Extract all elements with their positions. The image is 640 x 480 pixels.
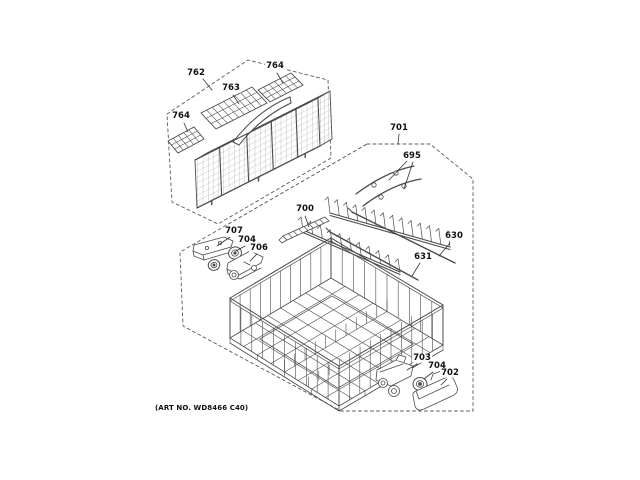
- part-callout-764-left: 764: [171, 112, 191, 121]
- carrier-703-drawing: [376, 355, 413, 397]
- art-number: (ART NO. WD8466 C40): [155, 404, 248, 412]
- part-callout-764-top: 764: [265, 62, 285, 71]
- part-callout-631: 631: [413, 253, 433, 262]
- part-callout-701: 701: [389, 124, 409, 133]
- retainer-clips-695-drawing: [356, 166, 421, 206]
- part-callout-763: 763: [221, 84, 241, 93]
- part-callout-700: 700: [295, 205, 315, 214]
- part-callout-702: 702: [440, 369, 460, 378]
- part-callout-762: 762: [186, 69, 206, 78]
- roller-704-mid2-drawing: [207, 258, 221, 272]
- part-callout-706: 706: [249, 244, 269, 253]
- slide-rail-700-drawing: [279, 217, 329, 243]
- part-callout-695: 695: [402, 152, 422, 161]
- lower-rack-drawing: [230, 238, 443, 411]
- part-callout-630: 630: [444, 232, 464, 241]
- diagram-line-art: [0, 0, 640, 480]
- parts-diagram: 762 763 764 764 701 695 700 707 704 706 …: [0, 0, 640, 480]
- basket-lid-764-left-drawing: [168, 127, 204, 153]
- adjuster-707-drawing: [193, 237, 233, 260]
- basket-lid-764-top-drawing: [258, 73, 303, 102]
